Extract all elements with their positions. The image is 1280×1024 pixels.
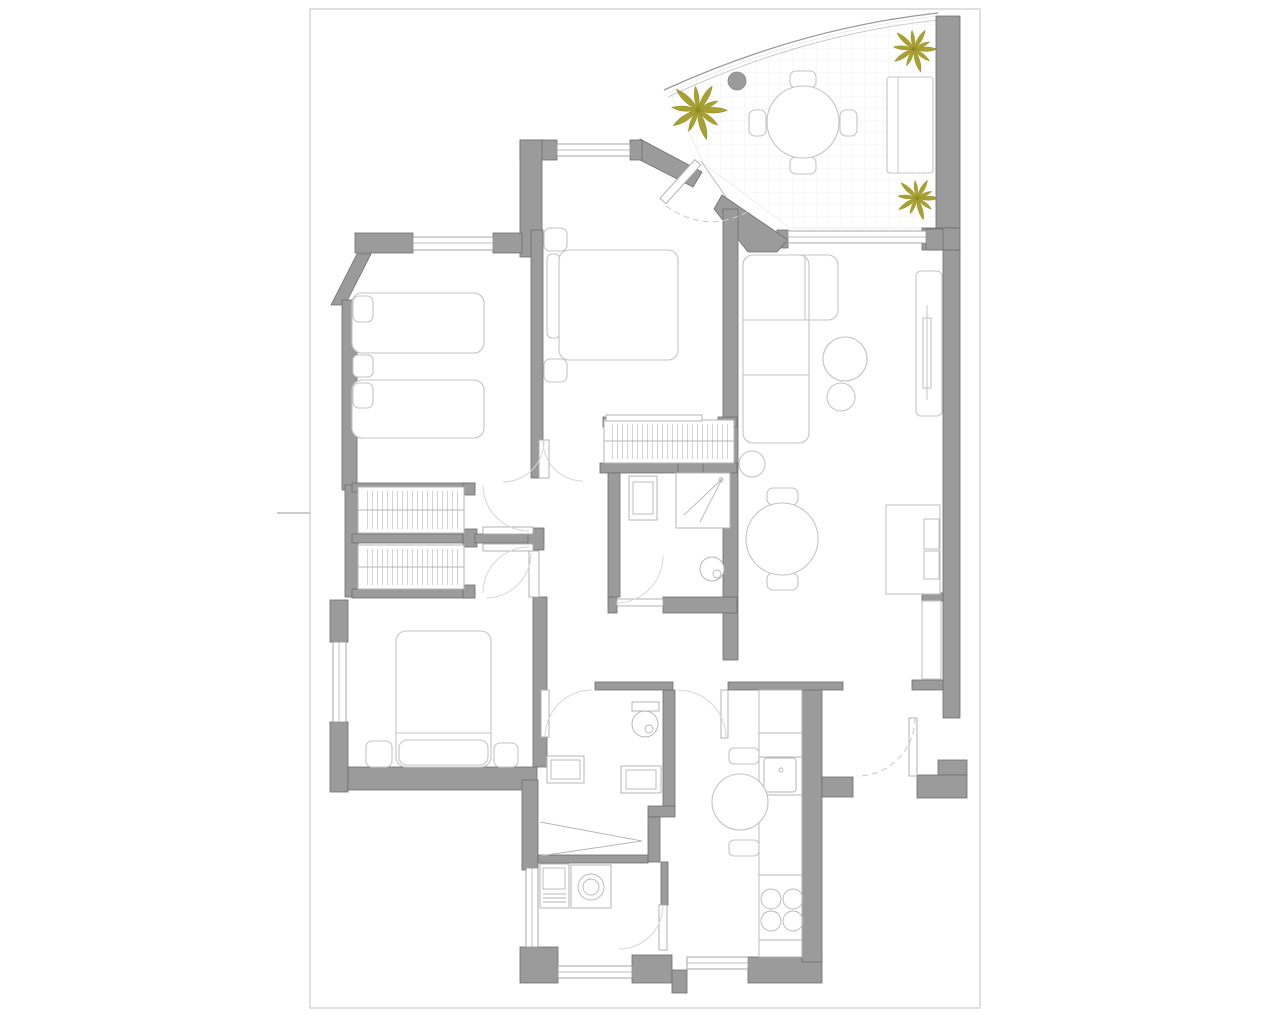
window <box>526 868 538 947</box>
wall-segment <box>822 777 853 797</box>
wall-segment <box>728 682 843 690</box>
pillow <box>353 383 373 408</box>
sideboard <box>886 505 940 594</box>
wall-segment <box>330 722 348 792</box>
wall-segment <box>663 597 737 613</box>
window <box>557 144 630 156</box>
hob-burner <box>783 889 803 909</box>
pillow <box>544 228 567 251</box>
chair <box>729 840 759 856</box>
terrace-bench <box>887 77 933 173</box>
wardrobe <box>358 487 464 533</box>
bedroom-1 <box>352 293 484 438</box>
chair <box>767 573 798 590</box>
pillow <box>399 740 488 765</box>
floor-plan <box>0 0 1280 1024</box>
bedroom-3 <box>366 631 518 767</box>
terrace <box>664 13 939 228</box>
bathroom2-door-swing <box>545 690 592 737</box>
wall-segment <box>663 690 675 808</box>
window <box>687 957 748 969</box>
toilet <box>632 711 658 737</box>
dining-table <box>746 503 818 575</box>
wall-segment <box>348 767 537 790</box>
headboard-cushion <box>547 254 560 338</box>
nightstand <box>366 741 392 767</box>
wardrobe <box>604 415 734 463</box>
pillow <box>353 296 373 322</box>
wall-segment <box>608 597 617 613</box>
wall-segment <box>672 970 687 993</box>
wall-segment <box>630 140 642 160</box>
wall-segment <box>936 16 960 228</box>
wall-segment <box>520 947 558 983</box>
coffee-table <box>827 383 855 411</box>
terrace-chair <box>790 157 816 174</box>
wall-segment <box>600 463 737 473</box>
wardrobe-door-swing <box>483 485 529 531</box>
wall-segment <box>917 775 967 798</box>
bedroom3-door-swing <box>486 553 531 598</box>
wardrobe-door-swing <box>483 547 529 593</box>
kitchen-sink <box>764 758 796 792</box>
terrace-chair <box>749 110 766 136</box>
window <box>788 231 926 243</box>
toilet-tank <box>632 702 659 711</box>
wall-segment <box>352 589 475 598</box>
window <box>413 237 493 250</box>
wall-segment <box>648 806 675 817</box>
bathroom-2 <box>540 702 661 856</box>
wall-segment <box>938 760 967 775</box>
washing-machine <box>571 865 611 908</box>
living-dining-room <box>739 255 942 679</box>
hob-burner <box>783 911 803 931</box>
kitchen-door-swing <box>678 690 726 738</box>
shower <box>540 822 642 856</box>
wardrobe <box>358 545 464 589</box>
pillow <box>544 359 567 382</box>
wardrobe-slider <box>606 415 702 421</box>
wall-segment <box>661 862 668 905</box>
vestibule-door-leaf <box>909 718 917 776</box>
wall-segment <box>352 534 475 543</box>
wall-segment <box>943 250 960 718</box>
wall-segment <box>648 817 660 862</box>
nightstand <box>353 355 373 377</box>
hob-burner <box>761 889 781 909</box>
terrace-round-table <box>767 86 839 158</box>
terrace-chair <box>840 110 857 136</box>
nightstand <box>494 743 518 767</box>
wall-segment <box>538 855 648 863</box>
kitchen-door-leaf <box>721 690 728 738</box>
side-table <box>739 451 765 477</box>
breakfast-table <box>712 774 768 830</box>
utility-door-swing <box>619 905 663 949</box>
wall-segment <box>522 780 538 870</box>
double-bed <box>559 250 678 360</box>
niche-cabinet <box>922 601 941 679</box>
wall-segment <box>608 473 620 597</box>
floor-plan-canvas <box>0 0 1280 1024</box>
column <box>728 72 746 90</box>
hob-burner <box>761 911 781 931</box>
wall-segment <box>595 682 673 690</box>
utility-room <box>540 864 611 908</box>
bathroom1-door-swing <box>616 556 663 603</box>
sofa <box>743 255 809 443</box>
wall-segment <box>463 483 475 495</box>
bedroom-2 <box>544 228 734 463</box>
wall-segment <box>802 690 822 962</box>
bathroom-1 <box>629 473 730 581</box>
wall-segment <box>463 585 475 598</box>
window <box>558 966 632 978</box>
wall-segment <box>533 597 547 767</box>
shower <box>676 473 730 528</box>
vestibule-door-swing <box>857 718 915 776</box>
wall-segment <box>632 955 672 983</box>
terrace-chair <box>790 71 816 88</box>
window <box>333 642 346 722</box>
wall-segment <box>912 680 943 690</box>
coffee-table <box>823 337 867 381</box>
wall-segment <box>355 233 413 253</box>
wall-segment <box>330 600 348 642</box>
toilet <box>700 557 724 581</box>
chair <box>729 748 759 764</box>
chair <box>767 488 798 505</box>
wall-segment <box>493 233 522 253</box>
wall-segment <box>926 229 943 250</box>
